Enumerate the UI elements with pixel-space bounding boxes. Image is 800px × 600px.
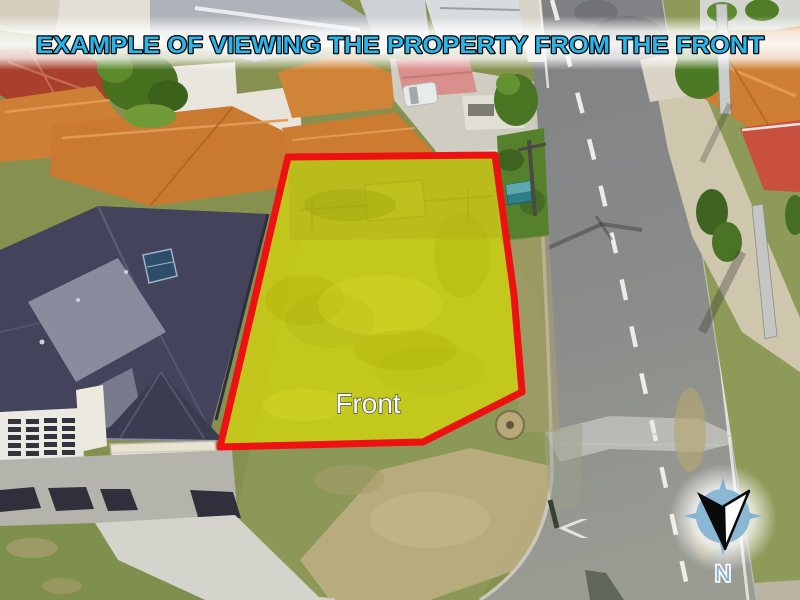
property-aerial-view: Front N EXAMPLE OF VIEWING THE PROPERTY … <box>0 0 800 600</box>
parked-car <box>402 82 438 107</box>
compass-label: N <box>715 561 731 586</box>
skylight <box>143 249 177 283</box>
front-label: Front <box>335 388 401 419</box>
banner: EXAMPLE OF VIEWING THE PROPERTY FROM THE… <box>0 16 800 70</box>
aerial-photo: Front N EXAMPLE OF VIEWING THE PROPERTY … <box>0 0 800 600</box>
banner-title: EXAMPLE OF VIEWING THE PROPERTY FROM THE… <box>36 32 764 59</box>
